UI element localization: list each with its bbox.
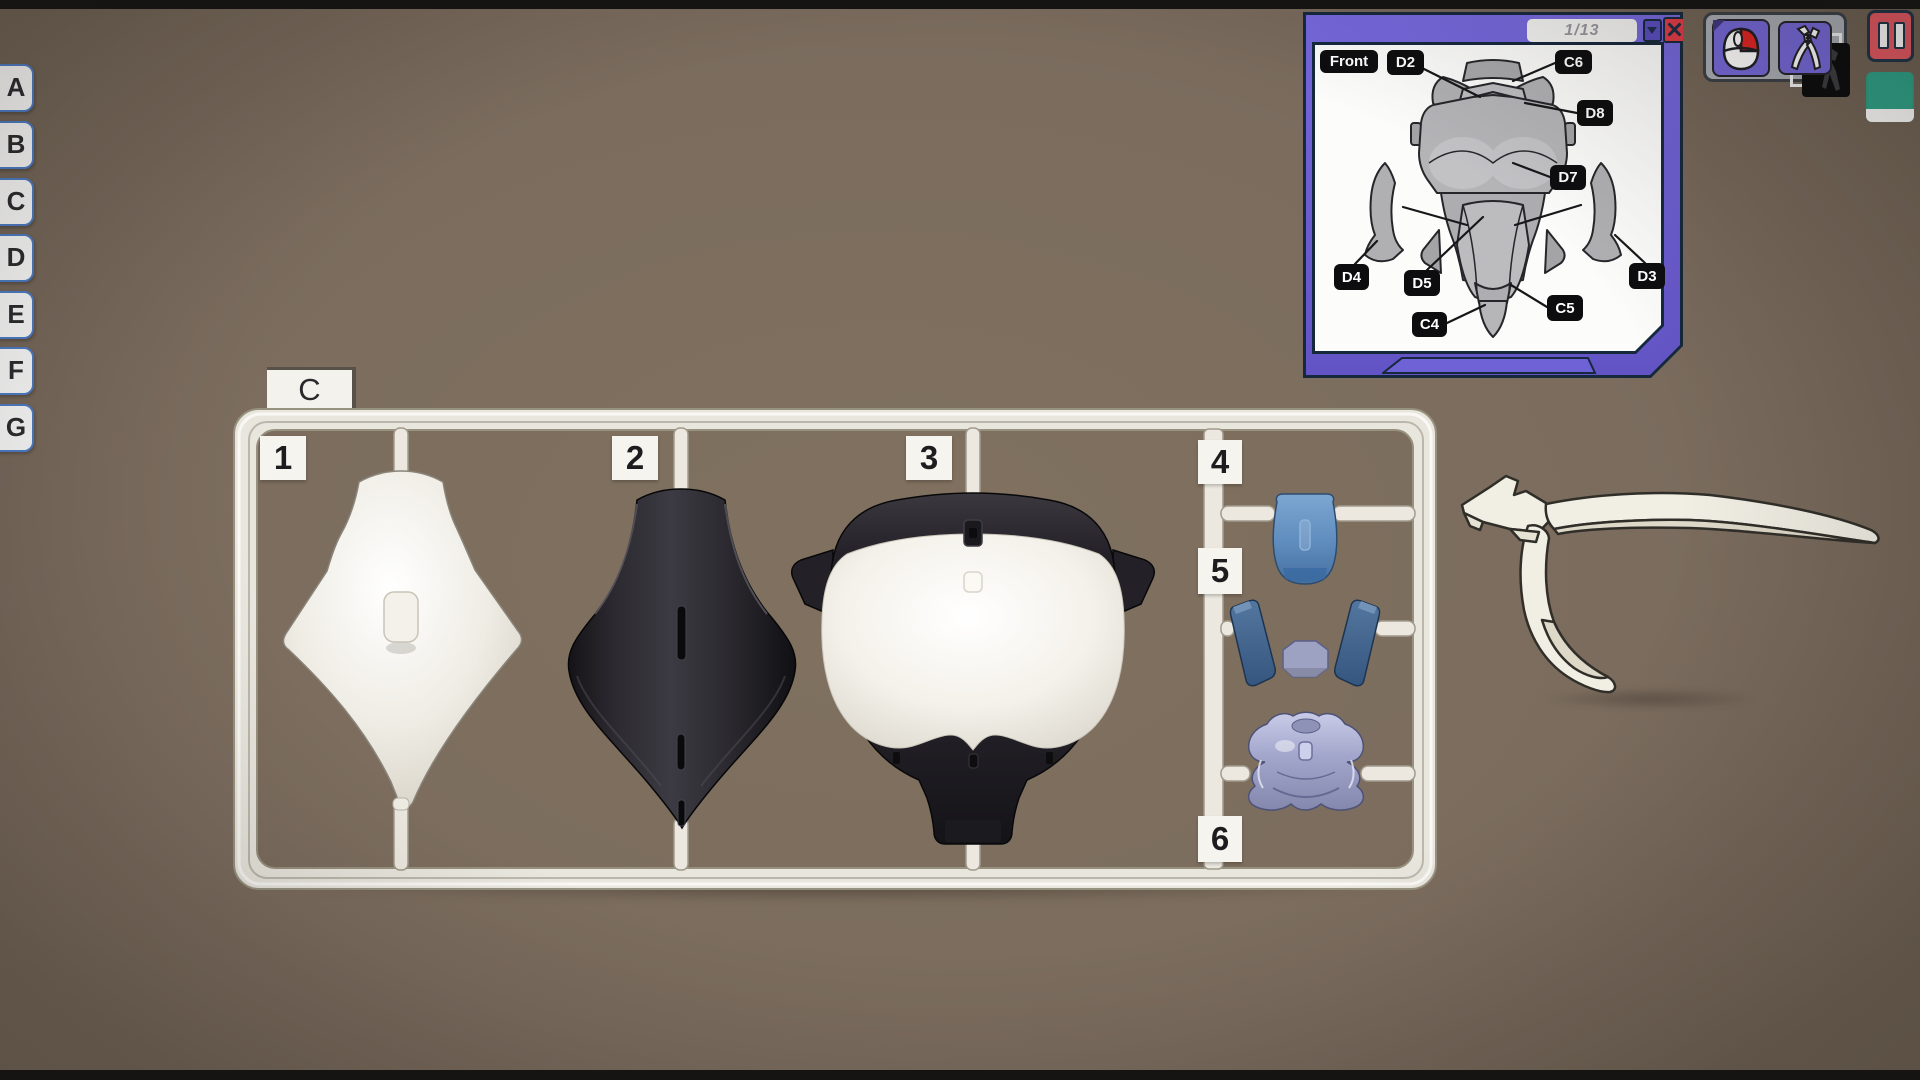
- label-d4: D4: [1334, 264, 1369, 290]
- sidebar-tab-c[interactable]: C: [0, 178, 34, 226]
- sprue-svg: [233, 408, 1437, 890]
- letterbox-bottom: [0, 1070, 1920, 1080]
- part-3-torso-shell[interactable]: [792, 493, 1155, 844]
- pause-bars-icon: [1878, 22, 1889, 49]
- label-text: C6: [1564, 54, 1583, 71]
- tag-number: 3: [920, 439, 938, 477]
- card-band: [1866, 109, 1914, 122]
- sprue-sheet-label: C: [267, 367, 356, 413]
- sidebar-tab-a[interactable]: A: [0, 64, 34, 112]
- mouse-mode-button[interactable]: [1712, 19, 1770, 77]
- manual-bottom-tab[interactable]: [1382, 356, 1608, 376]
- pause-bars-icon: [1894, 22, 1905, 49]
- tag-number: 2: [626, 439, 644, 477]
- label-c4: C4: [1412, 312, 1447, 337]
- nippers-icon: [1780, 23, 1830, 73]
- manual-panel[interactable]: Front D2 C6 D8 D7 D4 D5 D3 C5 C4 1/13: [1303, 12, 1683, 378]
- page-counter-text: 1/13: [1564, 22, 1599, 39]
- label-d7: D7: [1550, 165, 1586, 190]
- tab-label: A: [7, 72, 26, 102]
- tab-label: D: [7, 242, 26, 272]
- letterbox-top: [0, 0, 1920, 9]
- part-tag-1: 1: [260, 436, 306, 480]
- part-tag-5: 5: [1198, 548, 1242, 594]
- label-front: Front: [1320, 50, 1378, 73]
- sheet-letter: C: [298, 372, 320, 407]
- sidebar-tab-f[interactable]: F: [0, 347, 34, 395]
- green-card-button[interactable]: [1866, 72, 1914, 122]
- label-text: D3: [1637, 268, 1656, 285]
- label-d5: D5: [1404, 270, 1440, 296]
- label-text: D2: [1396, 54, 1415, 71]
- label-text: Front: [1330, 53, 1368, 70]
- part-1-white-shell[interactable]: [283, 471, 521, 810]
- tag-number: 1: [274, 439, 292, 477]
- corner-fold: [1713, 20, 1725, 32]
- tab-label: F: [8, 355, 24, 385]
- part-6-chest-armor[interactable]: [1249, 712, 1364, 810]
- part-5-collar-strips[interactable]: [1230, 600, 1379, 686]
- part-2-black-shell[interactable]: [568, 489, 795, 828]
- label-text: D8: [1585, 105, 1604, 122]
- part-4-blue-insert[interactable]: [1273, 494, 1337, 584]
- tag-number: 6: [1211, 820, 1229, 858]
- assembly-diagram: [1315, 45, 1669, 357]
- sidebar-tab-e[interactable]: E: [0, 291, 34, 339]
- label-text: C5: [1555, 300, 1574, 317]
- tab-label: G: [6, 412, 26, 442]
- triangle-down-icon: [1647, 27, 1657, 34]
- page-counter: 1/13: [1527, 19, 1637, 42]
- sidebar-tab-d[interactable]: D: [0, 234, 34, 282]
- tab-label: C: [7, 186, 26, 216]
- label-d3: D3: [1629, 263, 1665, 289]
- page-dropdown-button[interactable]: [1643, 19, 1662, 42]
- cutter-tool-button[interactable]: [1778, 21, 1832, 75]
- sidebar-tab-g[interactable]: G: [0, 404, 34, 452]
- diagram-part-d3: [1583, 163, 1621, 261]
- label-d8: D8: [1577, 100, 1613, 126]
- tab-label: E: [7, 299, 24, 329]
- part-tag-6: 6: [1198, 816, 1242, 862]
- label-text: D5: [1412, 275, 1431, 292]
- part-tag-2: 2: [612, 436, 658, 480]
- runner-divider: [1204, 429, 1223, 869]
- nippers-tool[interactable]: [1450, 462, 1895, 707]
- tool-toolbar: [1703, 12, 1847, 82]
- label-c5: C5: [1547, 295, 1583, 321]
- tag-number: 4: [1211, 443, 1229, 481]
- label-text: C4: [1420, 316, 1439, 333]
- label-d2: D2: [1387, 50, 1424, 75]
- tab-label: B: [7, 129, 26, 159]
- pause-button[interactable]: [1867, 10, 1914, 62]
- manual-close-button[interactable]: [1663, 17, 1686, 43]
- label-c6: C6: [1555, 50, 1592, 74]
- tag-number: 5: [1211, 552, 1229, 590]
- game-screen: A B C D E F G C: [0, 0, 1920, 1080]
- sidebar-tab-b[interactable]: B: [0, 121, 34, 169]
- sprue-c: [233, 408, 1437, 890]
- part-tag-3: 3: [906, 436, 952, 480]
- label-text: D4: [1342, 269, 1361, 286]
- label-text: D7: [1558, 169, 1577, 186]
- part-tag-4: 4: [1198, 440, 1242, 484]
